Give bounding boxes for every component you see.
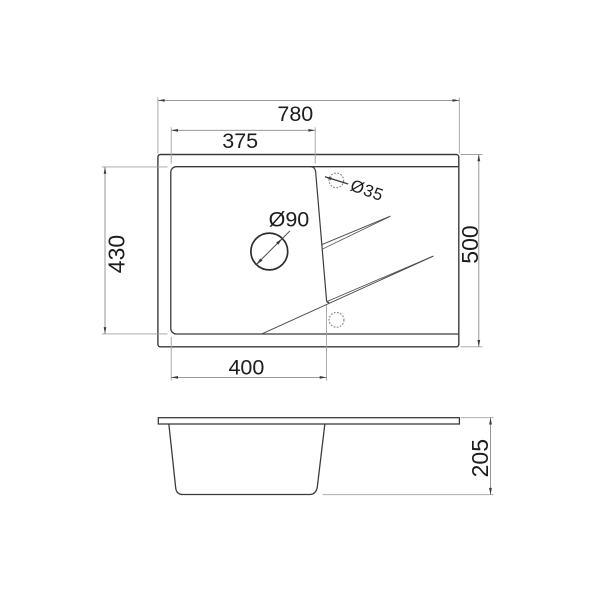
svg-text:500: 500 [457, 225, 483, 263]
svg-text:Ø90: Ø90 [269, 208, 310, 232]
svg-text:400: 400 [228, 355, 264, 379]
svg-text:430: 430 [104, 235, 130, 273]
svg-text:780: 780 [277, 102, 313, 126]
svg-text:205: 205 [467, 439, 493, 477]
svg-text:375: 375 [222, 129, 258, 153]
